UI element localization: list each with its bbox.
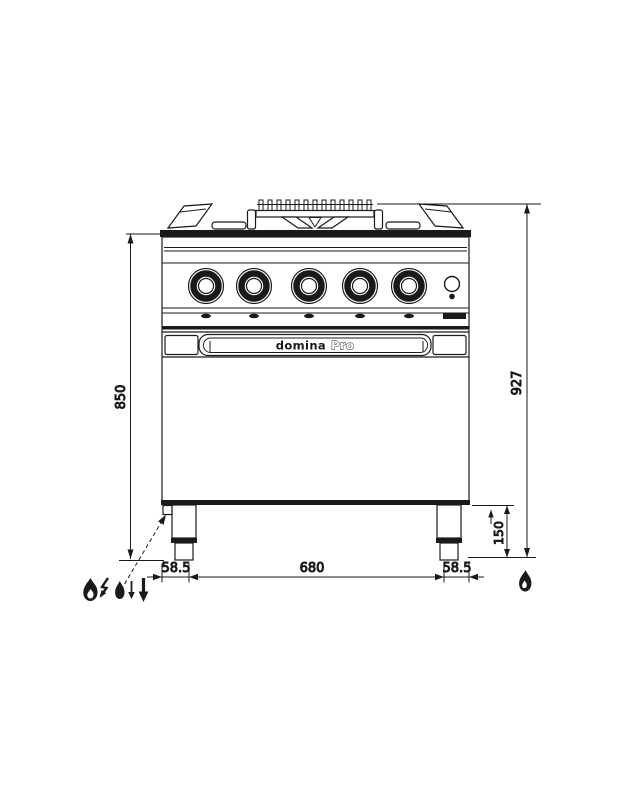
burner-cap-left bbox=[212, 222, 246, 229]
left-leg bbox=[171, 505, 197, 560]
dim-left-offset-label: 58.5 bbox=[162, 561, 191, 576]
dim-total-height-label: 927 bbox=[510, 371, 525, 396]
water-drop-icon bbox=[115, 581, 124, 599]
pan-support-center-right bbox=[318, 217, 348, 228]
burner-knob-2 bbox=[237, 269, 272, 304]
oven-door-bottom-edge bbox=[161, 500, 470, 505]
burner-knob-3 bbox=[292, 269, 327, 304]
pan-support-right bbox=[419, 204, 463, 228]
burner-knob-1 bbox=[189, 269, 224, 304]
grate-peg-left bbox=[248, 210, 256, 229]
connection-legend bbox=[83, 578, 148, 602]
hob-rim bbox=[160, 230, 471, 237]
electric-connection-icon bbox=[100, 578, 108, 598]
burner-cap-right bbox=[386, 222, 420, 229]
brand-suffix: Pro bbox=[331, 339, 354, 353]
handle-end-left bbox=[165, 336, 198, 355]
gas-connection-point bbox=[163, 506, 172, 515]
dimension-lines: 850 927 150 bbox=[114, 204, 541, 590]
pan-support-center-left bbox=[282, 217, 312, 228]
right-leg bbox=[436, 505, 462, 560]
brand-name: domina bbox=[276, 339, 326, 353]
dim-right-offset-label: 58.5 bbox=[443, 561, 472, 576]
dim-plinth-height-label: 150 bbox=[491, 521, 506, 545]
burner-knob-5 bbox=[392, 269, 427, 304]
technical-drawing-page: dominaPro 850 927 150 bbox=[0, 0, 619, 800]
grate-peg-right bbox=[375, 210, 383, 229]
panel-bottom-edge bbox=[162, 326, 469, 330]
dim-hob-height-label: 850 bbox=[114, 385, 129, 410]
range-front-view bbox=[160, 200, 471, 560]
burner-knob-4 bbox=[343, 269, 378, 304]
drain-arrow-icon bbox=[128, 581, 135, 599]
brand-label: dominaPro bbox=[276, 339, 355, 353]
gas-connection-flame-icon bbox=[519, 570, 531, 592]
rating-plate bbox=[443, 313, 466, 320]
center-rack-bar bbox=[256, 211, 374, 218]
vent-arrow-icon bbox=[139, 578, 149, 602]
handle-end-right bbox=[433, 336, 466, 355]
control-panel bbox=[189, 269, 460, 304]
gas-flame-icon bbox=[83, 578, 97, 601]
pan-support-left bbox=[168, 204, 212, 228]
indicator-dot bbox=[449, 294, 455, 300]
dim-leg-span-label: 680 bbox=[300, 561, 325, 576]
piezo-igniter-button bbox=[445, 277, 460, 292]
range-dimension-diagram: dominaPro 850 927 150 bbox=[0, 0, 619, 800]
center-rack-teeth bbox=[259, 200, 371, 211]
center-notch bbox=[309, 218, 321, 228]
